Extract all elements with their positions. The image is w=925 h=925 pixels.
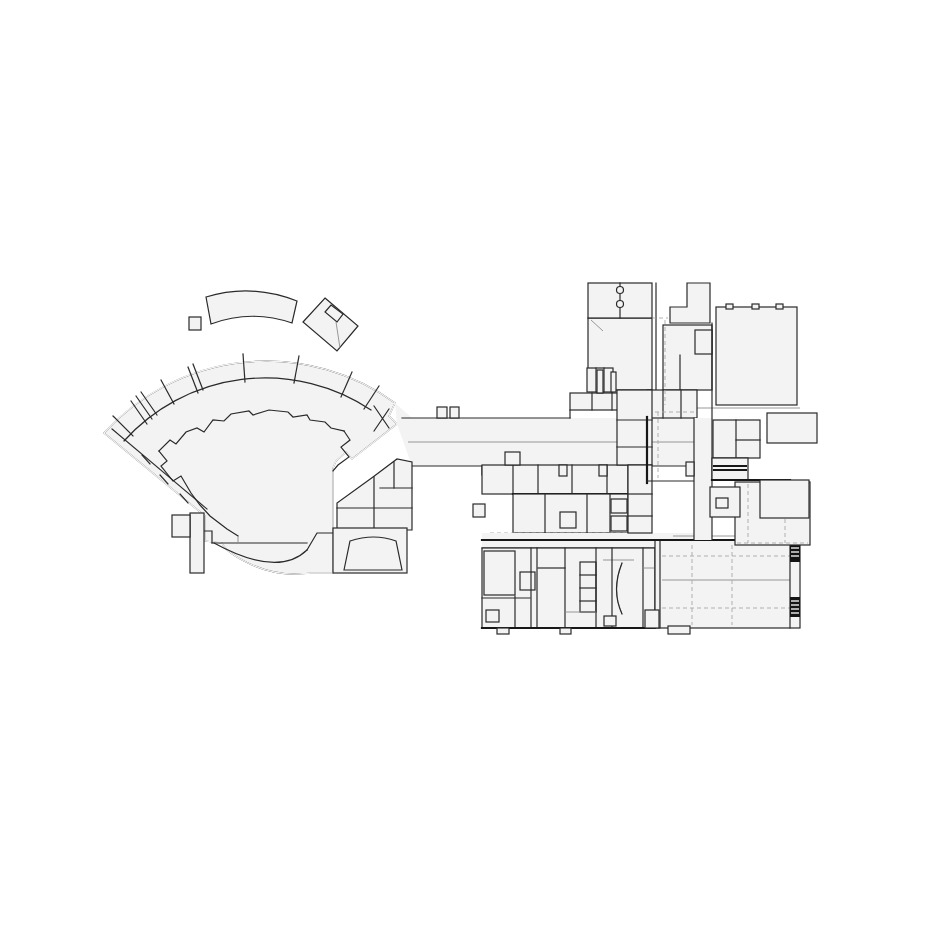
hall-east [655,540,800,628]
south-tab-1 [497,628,509,634]
sw-closet [486,610,499,622]
ne-inner [695,330,712,354]
lab-tick-3 [776,304,783,309]
row-a-lobby-tab [505,452,520,465]
row-b-cell-1 [611,499,627,513]
wc-fixture-2 [617,301,624,308]
kiosk-square [189,317,201,330]
hall-south-tab [668,626,690,634]
ns-door-stub [686,462,694,476]
stall-block [580,562,596,612]
row-a-stub-2 [599,465,607,476]
stair-run-1 [790,544,800,562]
ne-bold-room [670,283,710,323]
column-bar-1 [597,370,603,393]
corridor-vestibule-2 [450,407,459,418]
choir-room [333,528,407,573]
sw-room-2 [520,572,535,590]
e-room-767 [767,413,817,443]
stair-tower-foot [172,515,190,537]
stair-run-2 [790,597,800,617]
mid-col-2 [628,465,652,533]
lab-hall [716,307,797,405]
lab-tick-2 [752,304,759,309]
wc-fixture-1 [617,287,624,294]
ns-corridor-floor [694,418,712,540]
mid-rooms-n [647,390,697,418]
row-a-stub-1 [559,465,567,476]
stair-tower-bar [190,513,204,573]
lab-tick-1 [726,304,733,309]
hall-cell [645,610,659,628]
floor-plan-svg [0,0,925,925]
row-b-closet [560,512,576,528]
sw-cell [604,616,616,626]
sw-room-1 [484,551,515,595]
canopy-arc [206,291,297,324]
floor-plan [0,0,925,925]
south-tab-2 [560,628,571,634]
west-stub-room [473,504,485,517]
corridor-vestibule-1 [437,407,447,418]
se-room-760 [760,480,809,518]
column-bar-2 [611,372,616,392]
se-small-inner [716,498,728,508]
row-b-cell-2 [611,516,627,531]
